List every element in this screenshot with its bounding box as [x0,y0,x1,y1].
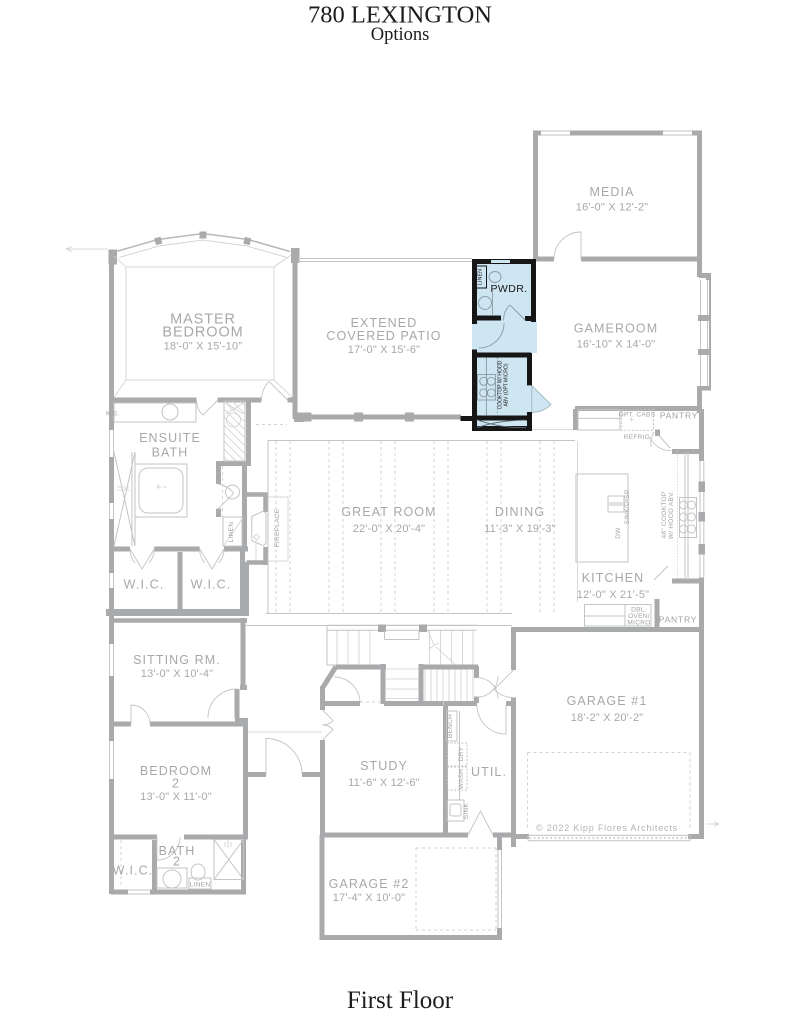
svg-text:11'-3" X 19'-3": 11'-3" X 19'-3" [484,523,556,535]
svg-text:PANTRY: PANTRY [659,615,698,625]
svg-text:W.I.C.: W.I.C. [124,578,165,592]
svg-text:DW: DW [615,527,622,539]
svg-text:GARAGE #2: GARAGE #2 [329,877,410,891]
svg-text:Options: Options [371,25,430,45]
svg-text:UTIL.: UTIL. [471,765,507,779]
svg-text:ENSUITE: ENSUITE [139,431,201,445]
svg-text:GAMEROOM: GAMEROOM [574,322,659,336]
svg-text:11'-6" X 12'-6": 11'-6" X 12'-6" [348,777,420,789]
svg-text:13'-0" X 10'-4": 13'-0" X 10'-4" [141,668,214,680]
svg-text:First Floor: First Floor [347,987,454,1014]
svg-text:BATH: BATH [152,446,189,460]
svg-text:BEDROOM: BEDROOM [162,325,243,341]
svg-text:DRY: DRY [458,746,465,761]
svg-text:2: 2 [172,777,180,791]
svg-text:EXTENED: EXTENED [351,316,418,330]
svg-text:KITCHEN: KITCHEN [582,571,645,585]
svg-text:16'-0" X 12'-2": 16'-0" X 12'-2" [576,202,649,214]
svg-text:PANTRY: PANTRY [660,411,699,421]
svg-text:18'-0" X 15'-10": 18'-0" X 15'-10" [164,341,243,353]
svg-text:OPT. CABS: OPT. CABS [619,412,656,419]
svg-text:REFRIG.: REFRIG. [624,434,652,441]
svg-text:12'-0" X 21'-5": 12'-0" X 21'-5" [577,589,650,601]
svg-text:W/ HOOD ABV.: W/ HOOD ABV. [668,491,675,540]
svg-text:SINK/DISP: SINK/DISP [624,490,631,525]
svg-text:MICRO: MICRO [627,619,650,626]
svg-text:ABV (OPT MICRO): ABV (OPT MICRO) [504,363,510,406]
svg-text:© 2022 Kipp Flores Architects: © 2022 Kipp Flores Architects [536,823,678,833]
svg-text:17'-0" X 15'-6": 17'-0" X 15'-6" [348,344,421,356]
svg-text:18'-2" X 20'-2": 18'-2" X 20'-2" [571,712,644,724]
svg-text:17'-4" X 10'-0": 17'-4" X 10'-0" [333,892,406,904]
svg-text:SITTING RM.: SITTING RM. [133,653,221,667]
svg-text:GREAT ROOM: GREAT ROOM [341,505,436,519]
svg-text:COVERED PATIO: COVERED PATIO [326,329,441,343]
svg-text:MEDIA: MEDIA [589,185,634,199]
svg-text:LINEN: LINEN [190,882,211,889]
svg-text:2: 2 [173,855,181,869]
svg-text:STUDY: STUDY [360,759,408,773]
svg-text:SINK: SINK [463,802,470,819]
svg-text:GARAGE #1: GARAGE #1 [567,694,648,708]
svg-text:LINEN: LINEN [478,269,484,285]
svg-text:W.I.C.: W.I.C. [191,578,232,592]
svg-text:16'-10" X 14'-0": 16'-10" X 14'-0" [577,339,656,351]
svg-text:K.S.: K.S. [106,411,119,418]
svg-text:48" COOKTOP: 48" COOKTOP [661,491,668,538]
svg-text:BENCH: BENCH [447,714,454,738]
svg-text:FIREPLACE: FIREPLACE [274,508,281,547]
svg-text:LINEN: LINEN [228,522,235,543]
svg-text:13'-0" X 11'-0": 13'-0" X 11'-0" [140,791,212,803]
svg-text:PWDR.: PWDR. [491,283,528,295]
svg-text:22'-0" X 20'-4": 22'-0" X 20'-4" [353,523,426,535]
svg-text:WASH: WASH [458,769,465,789]
svg-text:DINING: DINING [495,505,545,519]
svg-text:W.I.C.: W.I.C. [113,864,154,878]
